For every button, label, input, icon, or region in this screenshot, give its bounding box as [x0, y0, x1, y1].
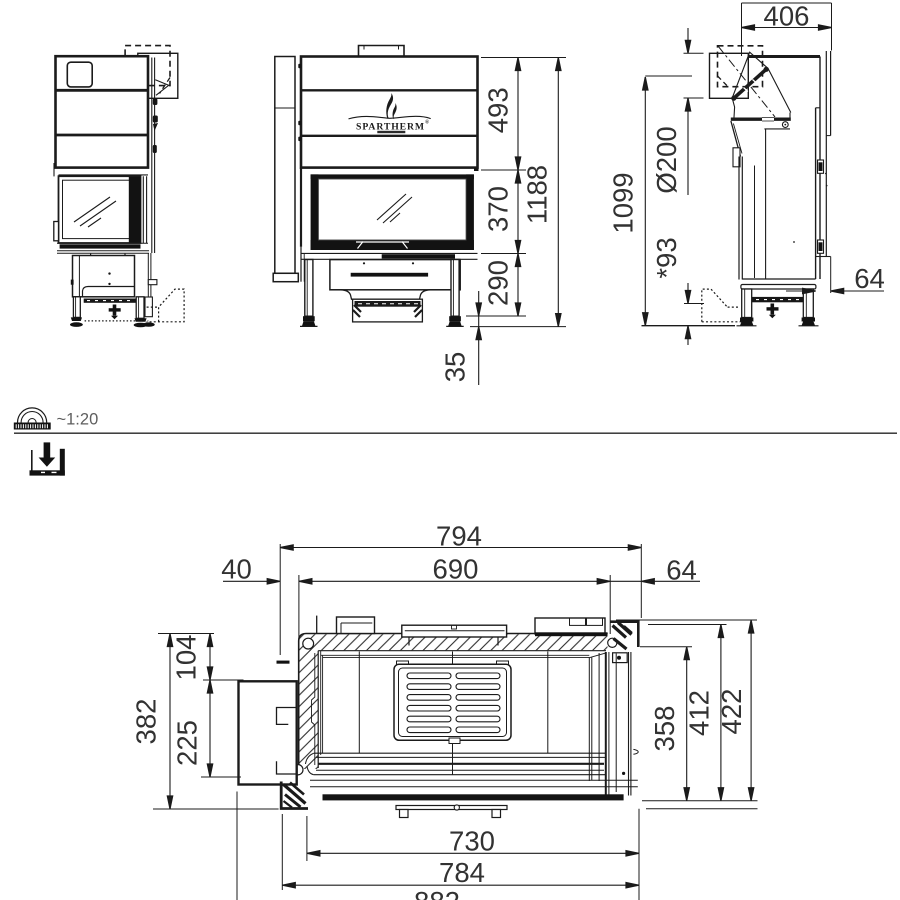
- svg-text:225: 225: [172, 720, 203, 766]
- svg-text:~1:20: ~1:20: [57, 411, 99, 429]
- svg-text:35: 35: [440, 352, 471, 383]
- svg-text:382: 382: [131, 699, 162, 745]
- svg-text:406: 406: [764, 0, 810, 31]
- svg-text:104: 104: [171, 635, 202, 681]
- svg-text:Ø200: Ø200: [651, 126, 682, 193]
- svg-text:1099: 1099: [608, 172, 639, 233]
- svg-text:358: 358: [649, 706, 680, 752]
- svg-text:64: 64: [854, 263, 885, 294]
- svg-text:690: 690: [433, 554, 479, 585]
- svg-text:882: 882: [414, 886, 460, 900]
- svg-text:40: 40: [221, 554, 252, 585]
- svg-text:370: 370: [483, 186, 514, 232]
- svg-text:784: 784: [439, 857, 485, 888]
- svg-text:®: ®: [425, 119, 429, 126]
- svg-text:64: 64: [666, 555, 697, 586]
- svg-text:493: 493: [483, 87, 514, 133]
- svg-text:1188: 1188: [522, 165, 553, 224]
- svg-text:794: 794: [436, 521, 482, 552]
- svg-text:290: 290: [483, 260, 514, 306]
- svg-text:*93: *93: [651, 237, 682, 278]
- svg-text:412: 412: [684, 690, 715, 736]
- svg-text:730: 730: [449, 826, 495, 857]
- svg-text:422: 422: [716, 689, 747, 735]
